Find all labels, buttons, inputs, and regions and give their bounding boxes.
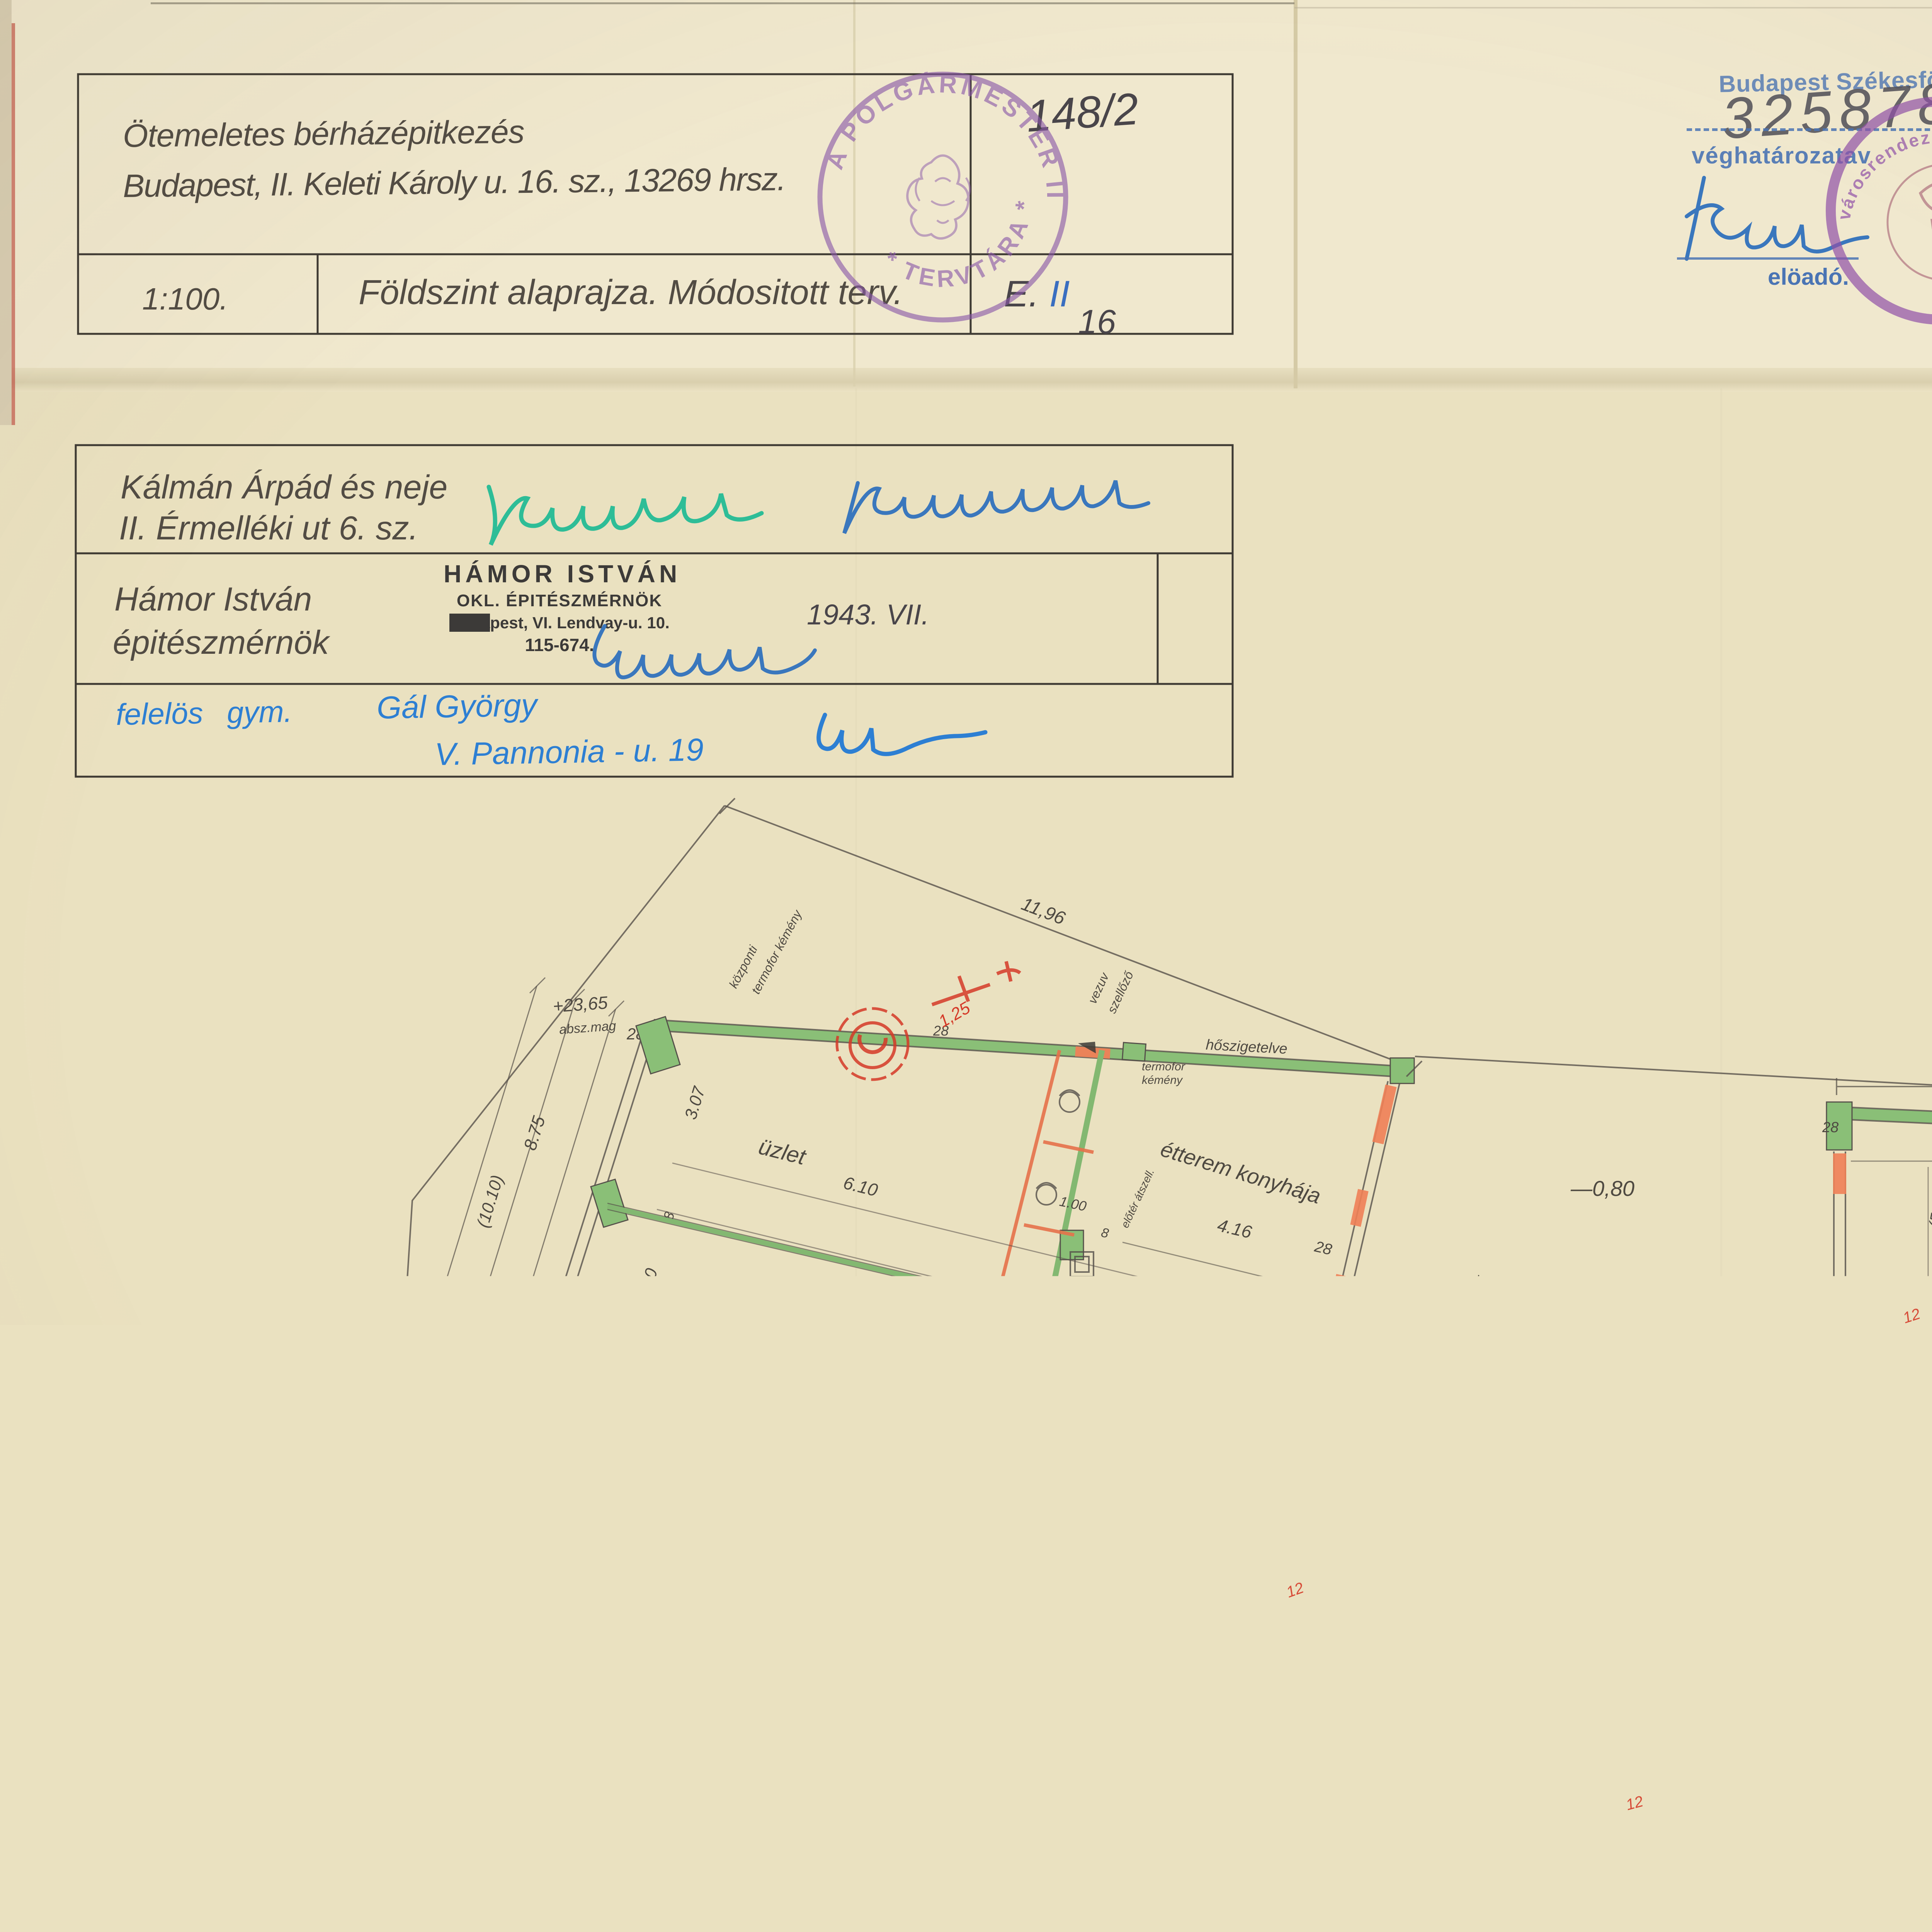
svg-text:8: 8 [1284,1769,1299,1777]
svg-text:5.18: 5.18 [1494,1607,1515,1641]
svg-text:+23,65: +23,65 [552,992,609,1016]
svg-text:1.50: 1.50 [522,1609,557,1635]
svg-text:kamra: kamra [1254,1392,1301,1411]
svg-text:28: 28 [1822,1119,1838,1136]
svg-text:8: 8 [1100,1225,1110,1241]
svg-text:28: 28 [1313,1238,1334,1259]
svg-text:(10.10): (10.10) [473,1173,507,1230]
svg-text:+ 1,05: + 1,05 [1617,1664,1665,1683]
svg-text:kémény: kémény [1142,1074,1183,1087]
svg-text:1.31: 1.31 [1367,1447,1398,1466]
svg-text:szellőző: szellőző [1847,1549,1883,1560]
svg-text:1.20: 1.20 [1627,1693,1644,1719]
svg-text:1.10: 1.10 [1688,1784,1713,1798]
svg-text:4.30: 4.30 [1275,1644,1296,1677]
svg-text:28: 28 [594,1738,617,1762]
svg-text:1,18: 1,18 [1433,1833,1454,1860]
svg-text:(15.10): (15.10) [426,1296,460,1354]
svg-text:kamra: kamra [1662,1829,1707,1847]
svg-text:2.60: 2.60 [633,1266,661,1304]
svg-text:5.00: 5.00 [351,1398,375,1434]
svg-text:4.30: 4.30 [678,1540,710,1578]
svg-text:4.72: 4.72 [1399,1721,1432,1740]
svg-text:szellőző: szellőző [1087,1422,1120,1432]
svg-text:üzlet: üzlet [708,1354,761,1390]
svg-text:1.31: 1.31 [1244,1408,1269,1438]
svg-text:3.07: 3.07 [681,1084,709,1122]
svg-text:6: 6 [1909,1332,1916,1347]
svg-text:2.70: 2.70 [1793,1436,1811,1465]
svg-text:kamra: kamra [1640,1393,1677,1408]
svg-text:férfi w.c.: férfi w.c. [1070,1373,1134,1405]
svg-text:11,96: 11,96 [1019,894,1068,929]
svg-text:+0,15: +0,15 [1410,1757,1457,1778]
svg-text:8.75: 8.75 [520,1114,549,1153]
svg-text:28: 28 [1614,1314,1634,1335]
svg-text:előtér: előtér [1656,1536,1703,1556]
svg-text:25: 25 [1470,1274,1492,1295]
svg-text:előtér átszell.: előtér átszell. [1119,1167,1156,1230]
svg-text:3.08: 3.08 [1357,1495,1379,1527]
svg-text:konyha: konyha [1766,1382,1826,1402]
svg-text:4.16: 4.16 [1216,1215,1254,1242]
svg-text:konyha: konyha [1756,1794,1821,1817]
svg-text:3.02: 3.02 [1769,1763,1788,1793]
svg-text:3.50: 3.50 [1323,1683,1344,1716]
svg-text:termofor: termofor [1142,1060,1185,1073]
svg-text:3.70: 3.70 [1437,1919,1470,1932]
svg-text:6: 6 [1797,1332,1804,1347]
svg-text:—0,80: —0,80 [1570,1176,1634,1201]
svg-text:3.35: 3.35 [1741,1437,1772,1456]
svg-text:8: 8 [1043,1476,1051,1489]
svg-text:5.21: 5.21 [1869,1653,1889,1685]
svg-text:kürtő: kürtő [1847,1560,1869,1571]
svg-text:2.10: 2.10 [1468,1434,1498,1451]
svg-text:6: 6 [1699,1564,1707,1579]
svg-text:±0,00: ±0,00 [1372,1900,1418,1920]
svg-text:1.10: 1.10 [1282,1796,1301,1824]
svg-text:1.60: 1.60 [1066,1497,1095,1517]
svg-text:étterem: étterem [962,1735,1039,1765]
svg-text:női w.c.: női w.c. [1050,1458,1110,1488]
svg-text:2.07: 2.07 [1798,1479,1830,1496]
svg-text:94: 94 [1609,1391,1627,1410]
svg-text:1.24: 1.24 [1627,1751,1644,1777]
svg-text:2.20: 2.20 [1669,1511,1699,1528]
svg-text:7.16: 7.16 [770,1350,809,1378]
svg-text:vezuv: vezuv [1085,970,1112,1006]
svg-text:kémény: kémény [1811,1634,1850,1646]
svg-text:vesztibül: vesztibül [1376,1676,1464,1701]
svg-text:üzlet: üzlet [756,1134,809,1170]
svg-text:étterem konyhája: étterem konyhája [1158,1136,1323,1208]
svg-text:előtér: előtér [1698,1642,1745,1663]
svg-text:1.31: 1.31 [1541,1442,1572,1461]
svg-text:1.50: 1.50 [1627,1565,1644,1592]
svg-text:1.00: 1.00 [1058,1193,1088,1214]
svg-text:kürtő: kürtő [1087,1432,1107,1442]
svg-text:2.70: 2.70 [1740,1732,1774,1751]
svg-text:1.24: 1.24 [1627,1635,1644,1662]
svg-text:.82: .82 [1662,1785,1677,1803]
svg-text:6: 6 [1185,1281,1196,1297]
svg-text:fürdő: fürdő [1893,1442,1932,1461]
svg-text:6.10: 6.10 [842,1172,880,1200]
svg-text:termofor: termofor [1811,1622,1852,1634]
